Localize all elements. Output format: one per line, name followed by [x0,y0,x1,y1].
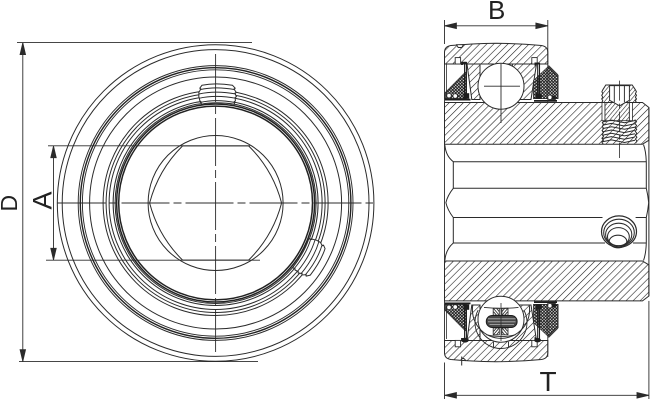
svg-text:T: T [540,366,557,397]
svg-text:D: D [0,195,22,212]
svg-text:B: B [488,0,505,25]
svg-text:A: A [28,191,58,209]
